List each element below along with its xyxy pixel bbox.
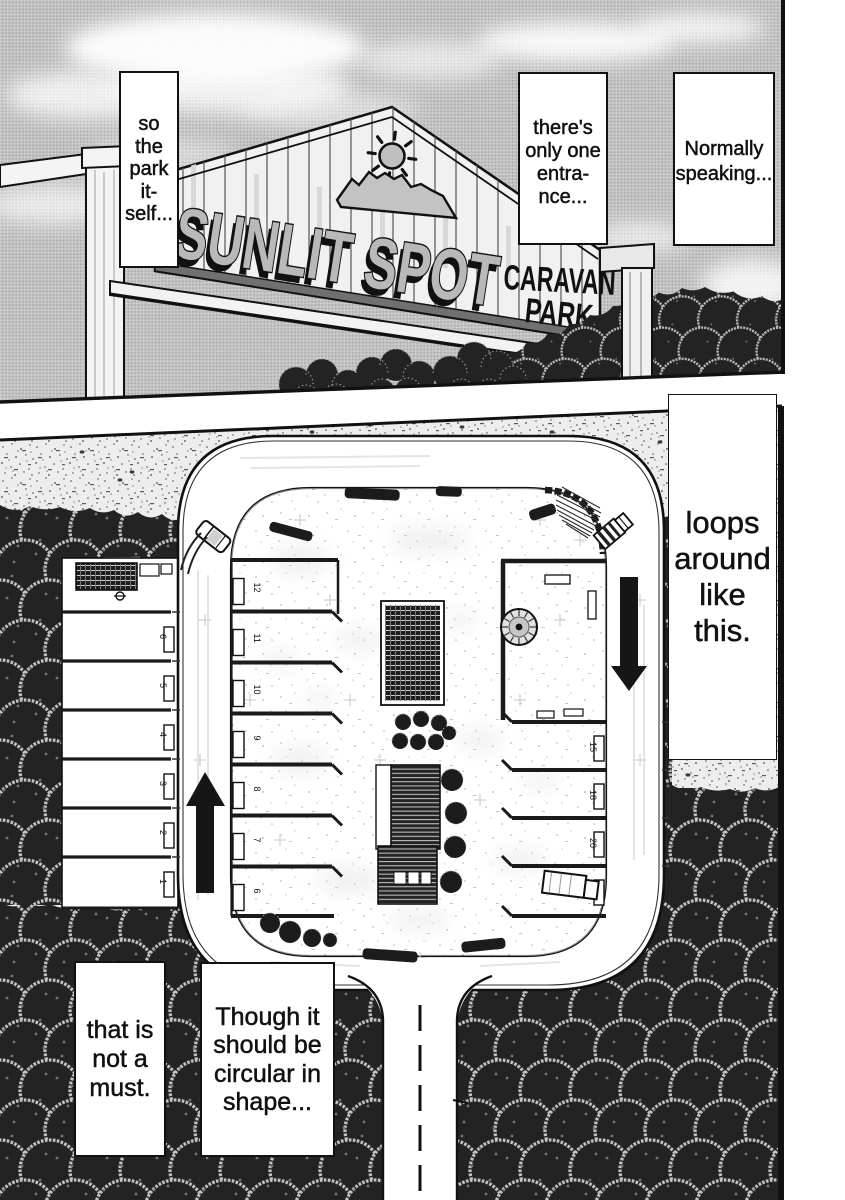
svg-text:20: 20	[588, 838, 598, 848]
svg-text:12: 12	[252, 583, 262, 593]
svg-text:9: 9	[252, 736, 262, 741]
svg-text:6: 6	[252, 889, 262, 894]
svg-text:11: 11	[252, 634, 262, 643]
svg-text:1: 1	[158, 879, 168, 884]
svg-text:18: 18	[588, 790, 598, 800]
svg-text:4: 4	[158, 732, 168, 737]
svg-text:3: 3	[158, 781, 168, 786]
svg-text:6: 6	[158, 634, 168, 639]
svg-text:2: 2	[158, 830, 168, 835]
svg-text:10: 10	[252, 685, 262, 695]
svg-text:15: 15	[588, 742, 598, 752]
svg-text:7: 7	[252, 838, 262, 843]
svg-text:8: 8	[252, 787, 262, 792]
svg-text:5: 5	[158, 683, 168, 688]
